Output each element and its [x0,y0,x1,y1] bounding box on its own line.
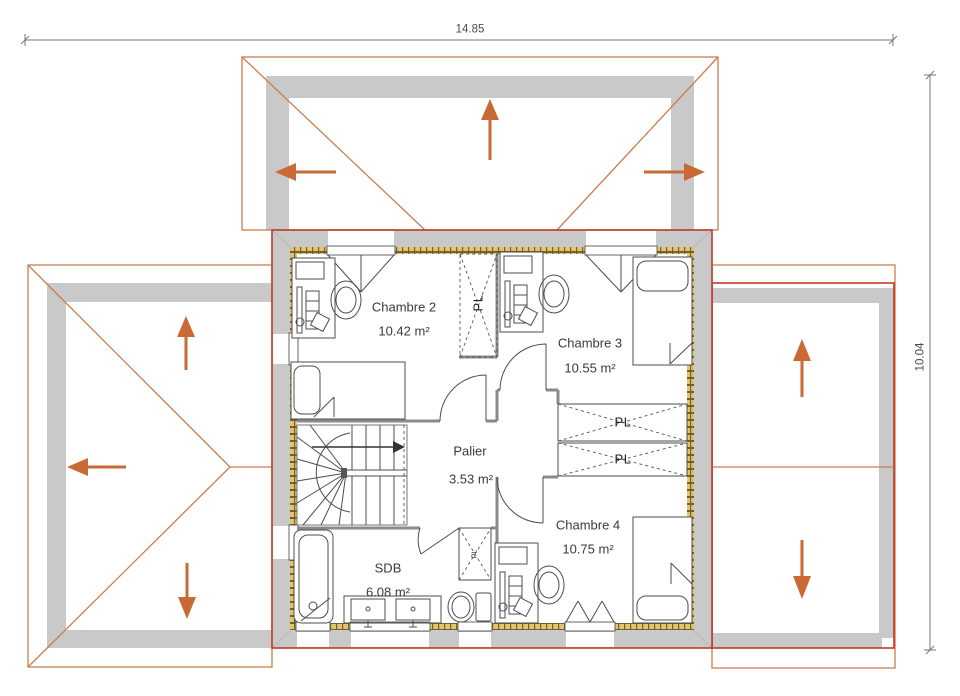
closet-label-middle-upper: PL [615,416,632,429]
width-dimension-label: 14.85 [456,24,485,36]
floor-plan: 14.85 10.04 Chambre 2 10.42 m² Chambre 3… [0,0,960,696]
room-name-chambre-4: Chambre 4 [556,519,620,532]
room-area-chambre-4: 10.75 m² [562,543,613,556]
roof-right-section [712,265,895,668]
bed-chambre-2 [291,362,405,419]
room-name-palier: Palier [453,445,486,458]
bed-chambre-4 [633,517,692,623]
floor-plan-drawing [0,0,960,696]
room-area-chambre-2: 10.42 m² [378,325,429,338]
height-dimension-label: 10.04 [915,343,927,372]
closet-label-bathroom: PL [472,550,479,559]
bathtub [294,530,333,623]
room-area-chambre-3: 10.55 m² [564,362,615,375]
room-name-chambre-2: Chambre 2 [372,301,436,314]
closet-label-middle-lower: PL [615,453,632,466]
room-area-palier: 3.53 m² [449,473,493,486]
bed-chambre-3 [633,257,692,365]
room-area-sdb: 6.08 m² [366,586,410,599]
width-dimension-line [21,34,897,46]
roof-left-section [28,265,272,667]
toilet [448,592,491,622]
room-name-sdb: SDB [375,562,402,575]
roof-top-section [242,57,718,230]
closet-label-top: PL [472,295,485,312]
room-name-chambre-3: Chambre 3 [558,337,622,350]
staircase [297,425,407,525]
